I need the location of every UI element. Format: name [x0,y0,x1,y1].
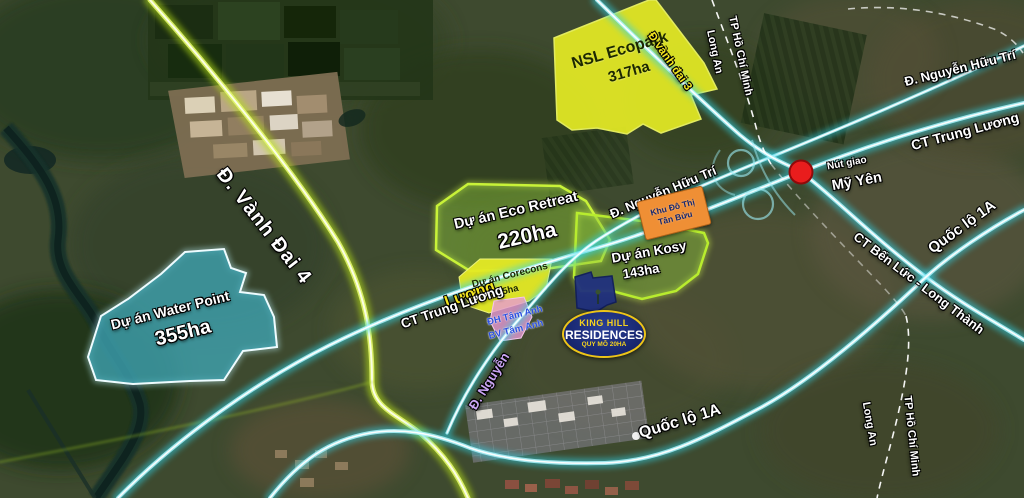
king-hill-brand-main: RESIDENCES [565,329,643,341]
king-hill-scale: QUY MÔ 20HA [582,342,627,349]
king-hill-logo-badge: KING HILL RESIDENCES QUY MÔ 20HA [562,310,646,358]
satellite-map-canvas[interactable]: NSL Ecopark 317ha Dự án Eco Retreat 220h… [0,0,1024,498]
kinghill-flag-marker [596,290,601,295]
king-hill-brand-top: KING HILL [579,319,629,328]
my-yen-junction-marker [790,161,813,184]
